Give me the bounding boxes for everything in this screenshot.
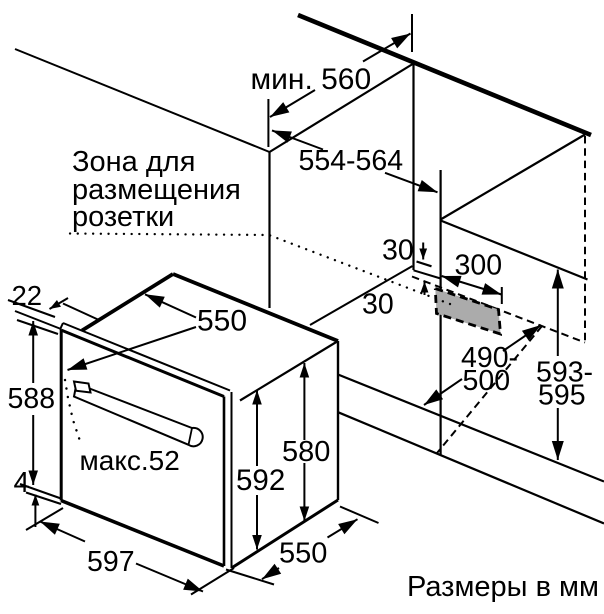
svg-text:22: 22 [12,280,43,311]
svg-text:595: 595 [538,380,586,412]
svg-text:300: 300 [455,250,503,282]
svg-text:597: 597 [87,546,135,578]
svg-text:30: 30 [362,289,394,321]
svg-text:550: 550 [279,538,327,570]
svg-text:30: 30 [382,235,414,267]
svg-text:554-564: 554-564 [299,145,404,177]
svg-text:580: 580 [282,436,330,468]
svg-text:розетки: розетки [72,201,174,233]
svg-text:макс.52: макс.52 [80,445,180,476]
svg-text:Размеры в мм: Размеры в мм [407,571,599,603]
svg-text:550: 550 [197,305,247,338]
svg-text:592: 592 [236,464,285,497]
svg-text:мин. 560: мин. 560 [251,63,372,96]
svg-text:4: 4 [14,467,30,499]
svg-text:588: 588 [8,383,56,415]
svg-text:500: 500 [463,365,511,397]
